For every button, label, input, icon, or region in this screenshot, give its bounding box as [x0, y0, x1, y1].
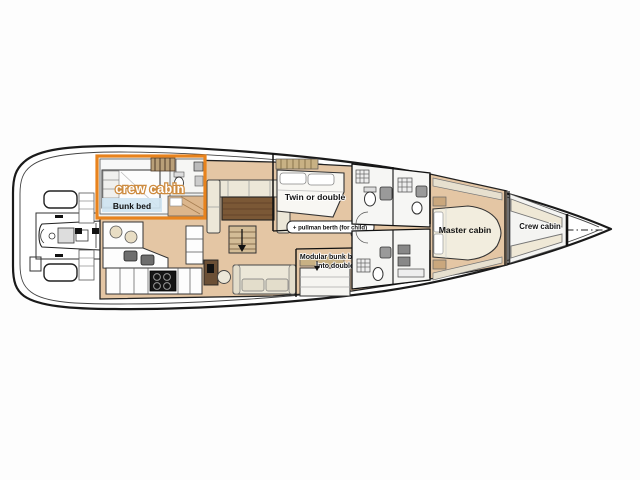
salon-table	[222, 197, 274, 220]
fridge	[186, 226, 203, 264]
toilet	[412, 202, 422, 214]
yacht-layout-svg: Twin or double + pullman berth (for chil…	[0, 0, 640, 480]
master-cabin-label: Master cabin	[439, 225, 492, 235]
modular-bunk-label-line2: into double	[316, 263, 354, 270]
forward-heads-bottom	[352, 229, 430, 289]
modular-bunk-bed	[300, 268, 350, 296]
pillow	[434, 234, 443, 254]
aft-crew-cabin-label: crew cabin	[115, 182, 185, 196]
toilet	[373, 268, 383, 281]
lounge-chair	[218, 271, 231, 284]
round-sink	[125, 231, 137, 243]
appliance	[398, 245, 410, 254]
nightstand	[433, 197, 446, 206]
washbasin	[380, 187, 392, 200]
toilet	[365, 192, 376, 206]
appliance	[398, 257, 410, 266]
galley-sink	[141, 255, 154, 265]
yacht-layout-figure: Twin or double + pullman berth (for chil…	[0, 0, 640, 480]
companionway-steps	[151, 158, 175, 171]
table-lamp	[207, 264, 214, 273]
cockpit-seat-top	[44, 191, 77, 208]
pillow	[280, 173, 306, 184]
pillow	[170, 198, 182, 206]
forward-heads-top	[352, 164, 430, 227]
galley-sink	[124, 251, 137, 261]
shower-grate	[357, 259, 370, 272]
washbasin	[416, 186, 427, 197]
cabinet	[398, 269, 424, 277]
twin-cabin-label: Twin or double	[285, 192, 346, 202]
fixture	[195, 176, 203, 186]
cockpit-seat-bottom	[44, 264, 77, 281]
aft-crew-cabin: Bunk bed crew cabin	[97, 156, 205, 218]
nightstand	[433, 260, 446, 269]
bunk-bed-label: Bunk bed	[113, 201, 151, 211]
cistern	[364, 187, 376, 192]
cistern	[174, 172, 184, 177]
twin-cabinet	[276, 159, 318, 169]
washbasin	[380, 247, 391, 258]
round-sink	[110, 226, 122, 238]
lounge-sofa	[233, 265, 296, 294]
salon-sofa-left	[207, 180, 220, 233]
shower-grate	[398, 178, 412, 192]
pillow	[308, 174, 334, 185]
shower-grate	[356, 170, 369, 183]
aft-berth	[168, 196, 204, 216]
bow-crew-cabin-label: Crew cabin	[519, 222, 561, 231]
washbasin	[194, 162, 203, 171]
modular-bunk-label-line1: Modular bunk bed	[300, 254, 360, 261]
companionway-stairs	[229, 226, 256, 253]
